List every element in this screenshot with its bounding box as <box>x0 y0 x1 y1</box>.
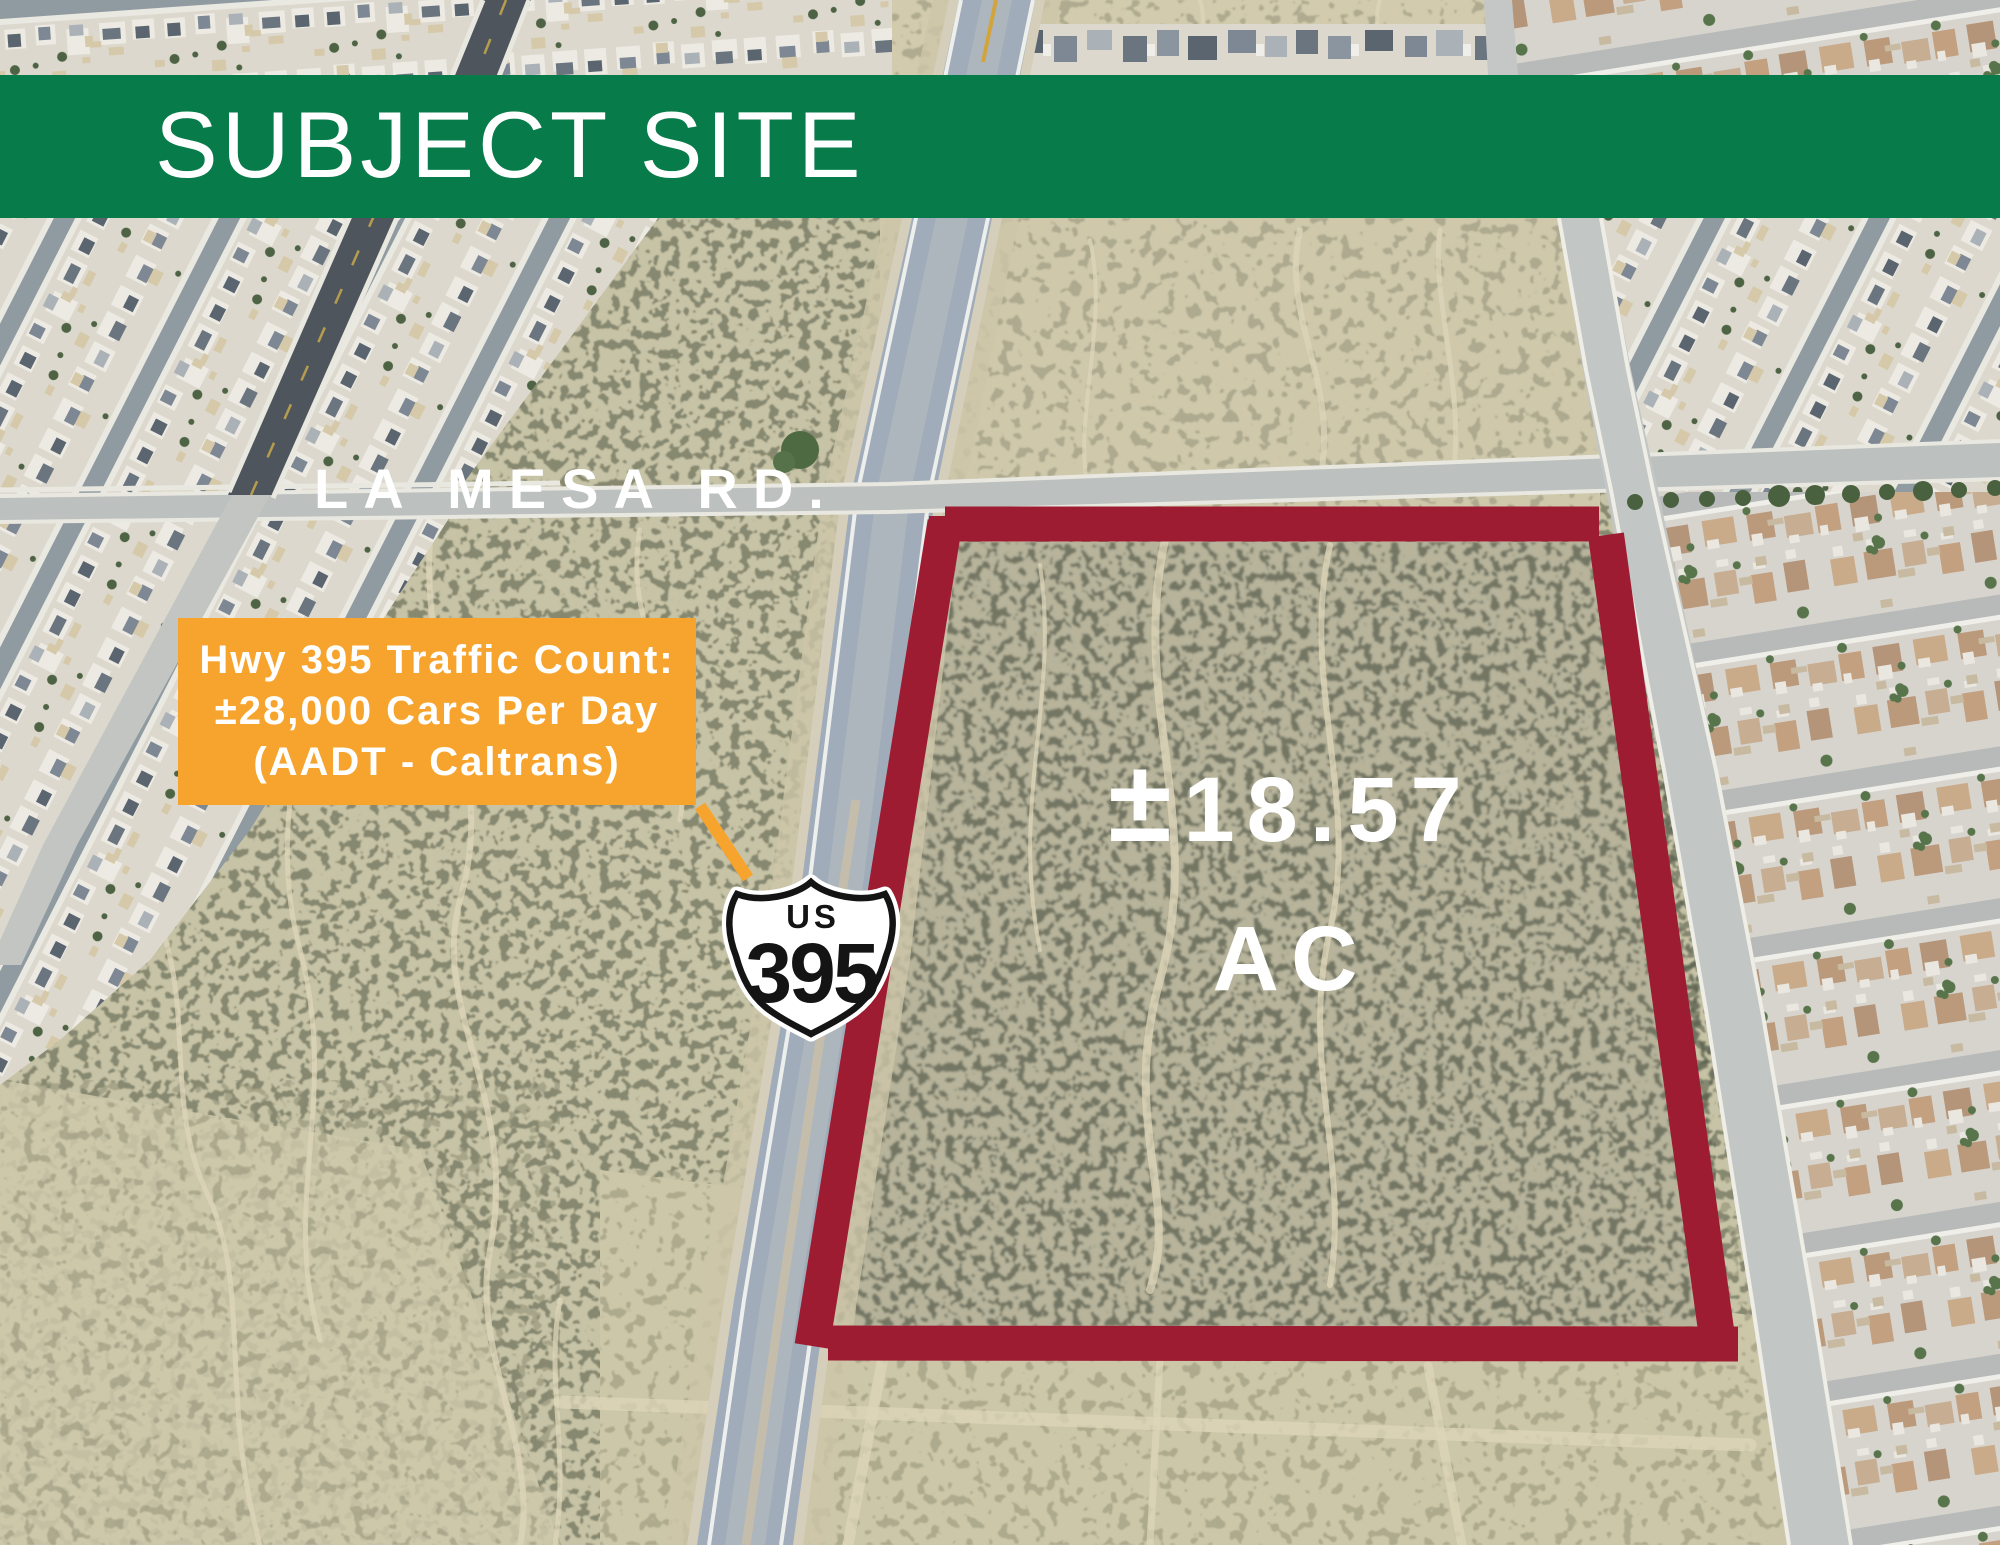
svg-text:395: 395 <box>745 926 877 1020</box>
